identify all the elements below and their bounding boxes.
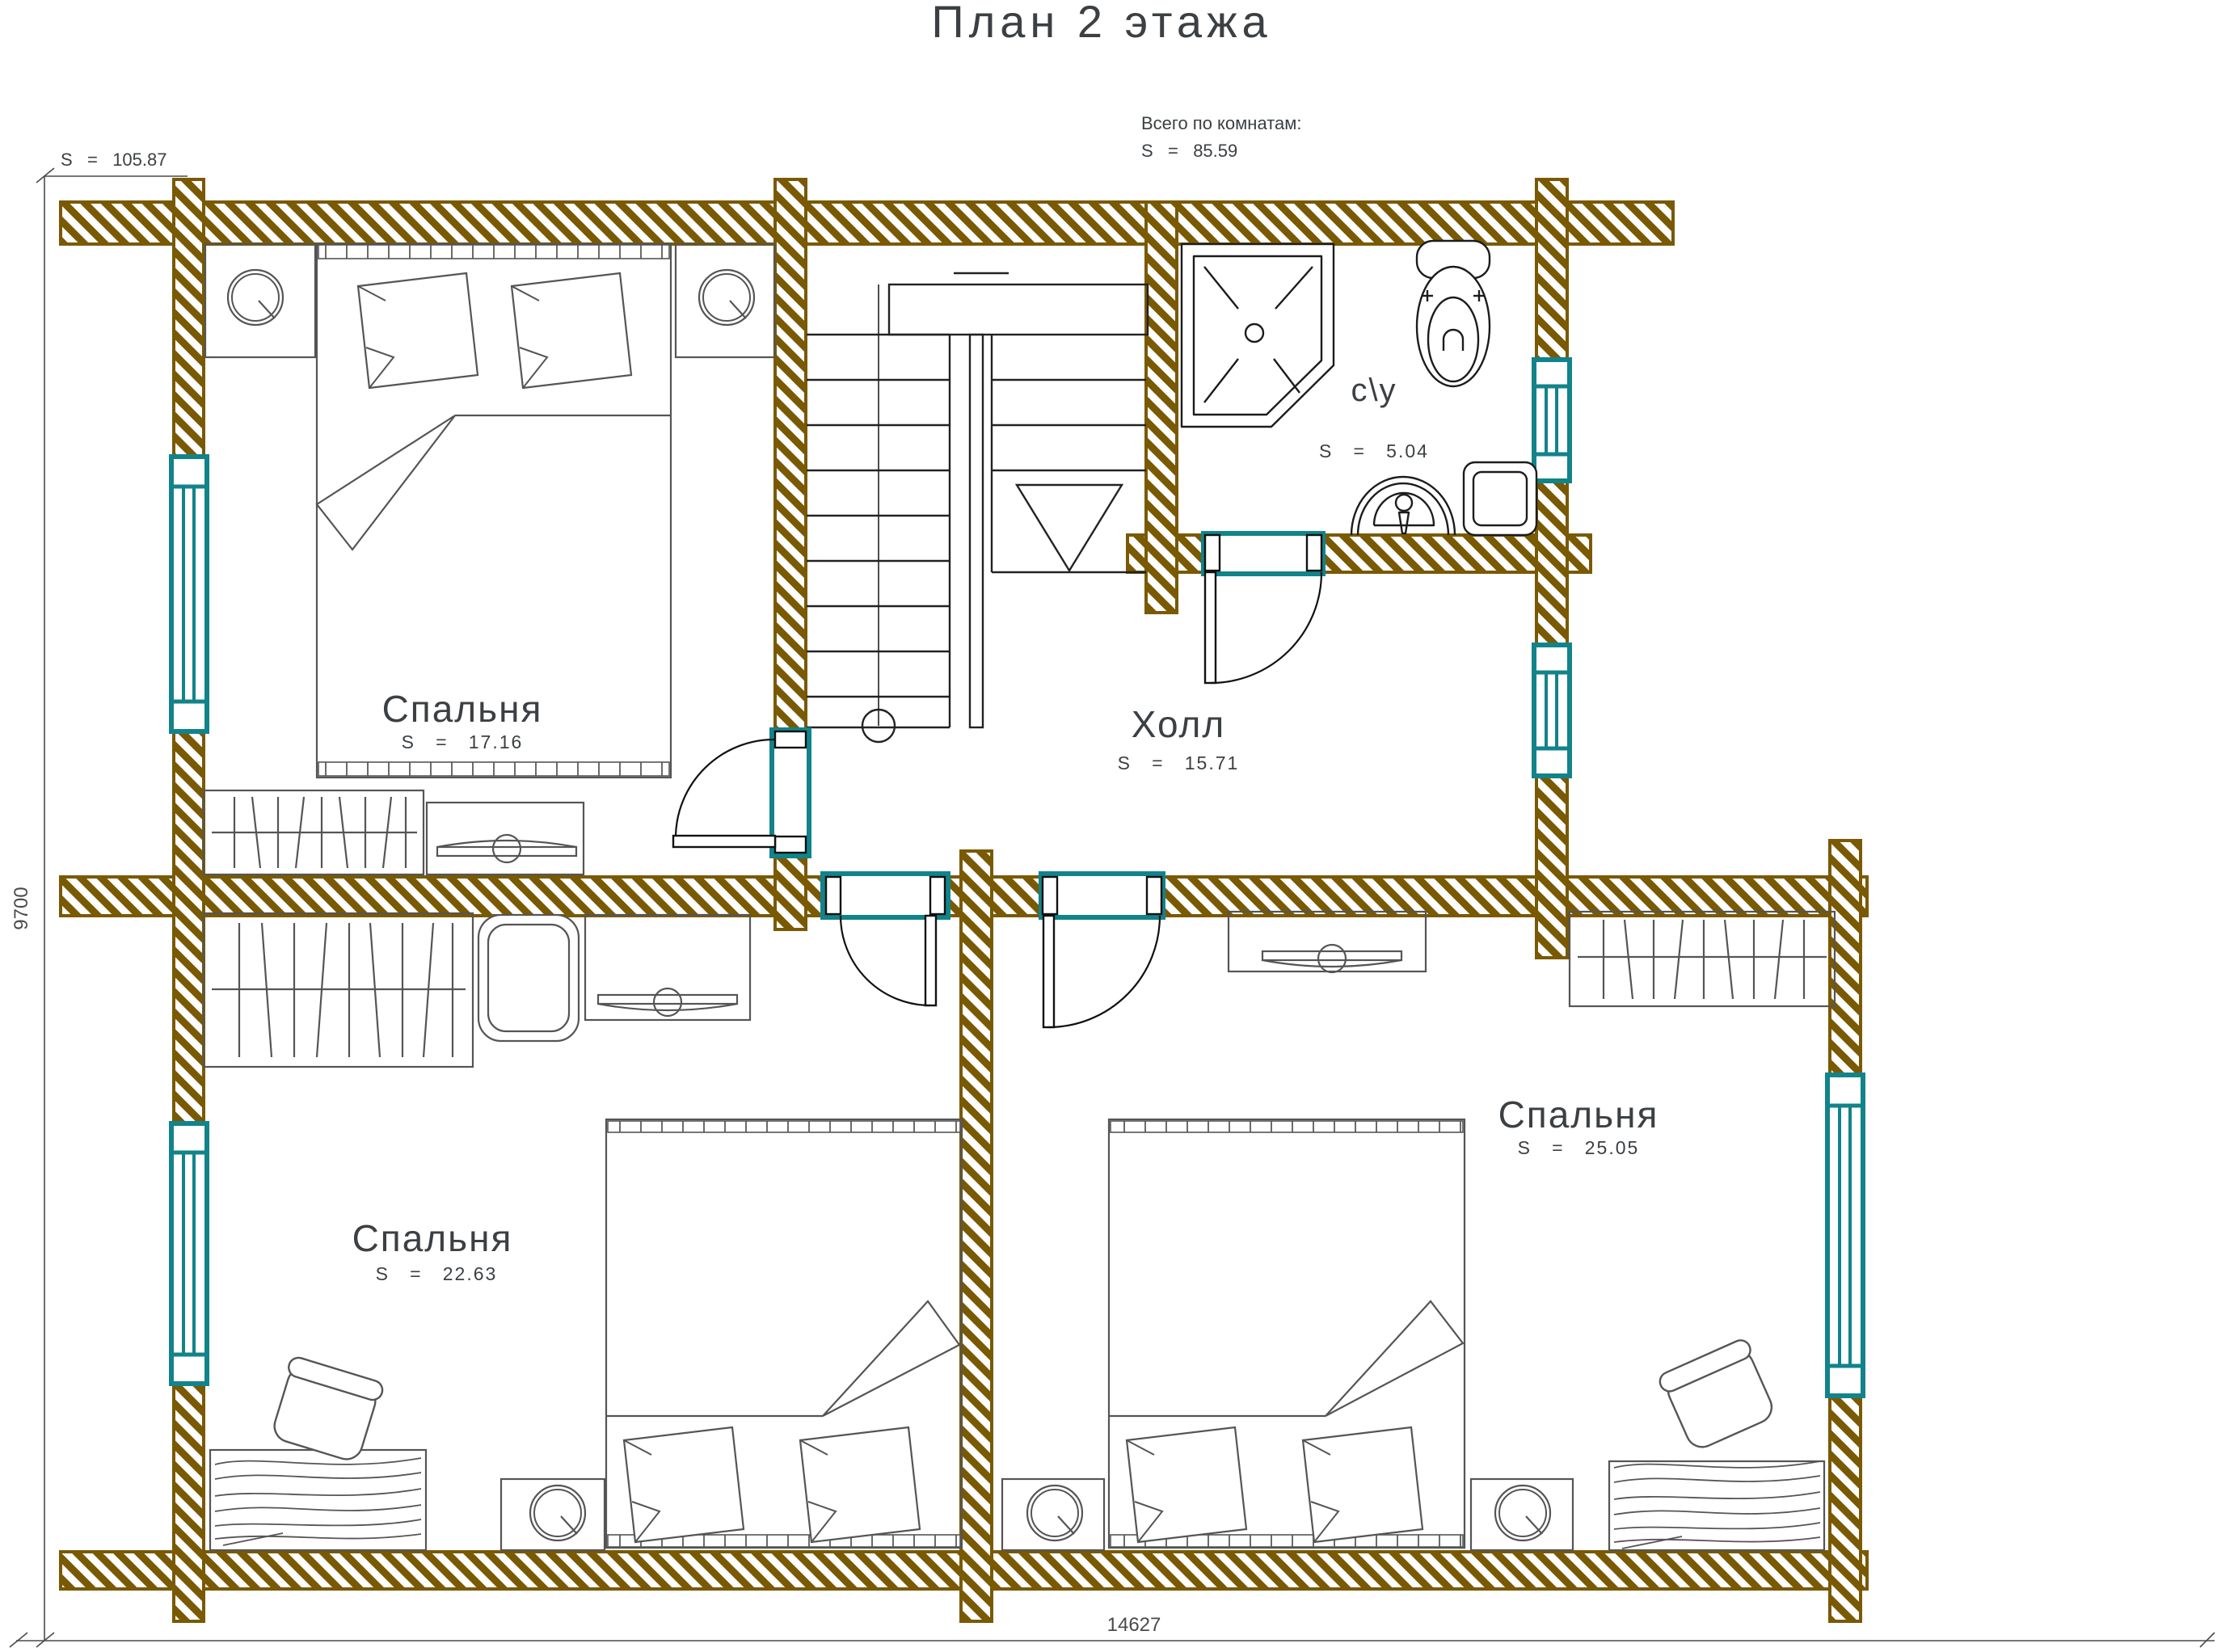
floor-plan-page: 9700 14627 План 2 этажа S = 105.87 Всего… (0, 0, 2217, 1652)
washing-machine-icon (1464, 462, 1536, 535)
desk-icon (210, 1450, 426, 1550)
doors (673, 533, 1323, 1027)
wall-left-exterior (174, 179, 204, 457)
wardrobe-icon (1570, 912, 1835, 1006)
armchair-icon (478, 915, 579, 1041)
wardrobe-icon (204, 913, 473, 1067)
svg-text:S = 22.63: S = 22.63 (376, 1263, 498, 1284)
tv-stand-icon (427, 803, 584, 874)
window-bedroom1-left (171, 457, 207, 731)
room-label-bedroom2: Спальня S = 22.63 (352, 1217, 513, 1284)
svg-text:S = 17.16: S = 17.16 (402, 731, 524, 752)
tv-stand-icon (585, 915, 750, 1020)
wall-right-exterior (1830, 1396, 1861, 1621)
wall-right-inner (1536, 776, 1567, 958)
svg-text:S = 5.04: S = 5.04 (1319, 440, 1429, 461)
wall-stair-partition (775, 854, 806, 929)
window-bathroom-right (1534, 360, 1570, 481)
window-hall-right (1534, 645, 1570, 776)
double-bed-icon (1109, 1119, 1465, 1548)
nightstand-icon (1002, 1479, 1104, 1550)
bedroom3-furniture (1002, 912, 1835, 1550)
room-label-bedroom1: Спальня S = 17.16 (382, 688, 543, 752)
window-bedroom2-left (171, 1123, 207, 1384)
wall-bathroom-left (1146, 202, 1177, 613)
wall-top-exterior (61, 202, 1673, 244)
svg-text:Спальня: Спальня (352, 1217, 513, 1259)
wall-left-exterior (174, 1384, 204, 1621)
room-label-bedroom3: Спальня S = 25.05 (1498, 1094, 1659, 1158)
total-area-label: S = 105.87 (61, 150, 166, 170)
door-bedroom3 (1041, 874, 1163, 1027)
svg-text:S = 15.71: S = 15.71 (1118, 752, 1240, 773)
door-bedroom2 (823, 874, 948, 1005)
desk-chair-icon (268, 1355, 385, 1464)
wall-right-inner (1536, 179, 1567, 360)
room-label-hall: Холл S = 15.71 (1118, 703, 1240, 773)
svg-text:S = 25.05: S = 25.05 (1518, 1137, 1640, 1158)
wall-bathroom-bottom (1127, 535, 1591, 572)
dimension-height-label: 9700 (11, 887, 32, 929)
page-title: План 2 этажа (931, 0, 1271, 47)
wall-left-exterior (174, 731, 204, 1123)
desk-chair-icon (1657, 1338, 1780, 1454)
room-label-bathroom: с\у S = 5.04 (1319, 373, 1429, 461)
wall-right-inner (1536, 481, 1567, 645)
desk-icon (1609, 1461, 1824, 1550)
wall-bedroom-partition (961, 851, 992, 1621)
svg-text:Спальня: Спальня (1498, 1094, 1659, 1136)
rooms-note-area: S = 85.59 (1141, 141, 1237, 161)
wall-stair-partition (775, 179, 806, 731)
tv-stand-icon (1229, 912, 1426, 972)
svg-text:Спальня: Спальня (382, 688, 543, 730)
svg-text:Холл: Холл (1132, 703, 1225, 745)
double-bed-icon (606, 1119, 962, 1548)
nightstand-icon (501, 1479, 605, 1550)
sink-icon (1351, 477, 1455, 535)
nightstand-icon (205, 244, 315, 357)
bedroom1-furniture (204, 244, 774, 874)
nightstand-icon (676, 244, 774, 357)
window-bedroom3-right (1827, 1075, 1863, 1396)
bedroom2-furniture (204, 913, 962, 1550)
shower-icon (1182, 244, 1334, 427)
floor-plan-canvas: 9700 14627 План 2 этажа S = 105.87 Всего… (0, 0, 2217, 1652)
nightstand-icon (1471, 1479, 1573, 1550)
svg-text:с\у: с\у (1351, 373, 1397, 408)
rooms-note-label: Всего по комнатам: (1141, 113, 1302, 133)
door-bedroom1 (673, 730, 809, 856)
wardrobe-icon (204, 790, 424, 874)
door-bathroom (1203, 533, 1323, 683)
toilet-icon (1417, 241, 1490, 386)
staircase-icon (807, 273, 1148, 742)
dimension-width-label: 14627 (1107, 1614, 1161, 1636)
